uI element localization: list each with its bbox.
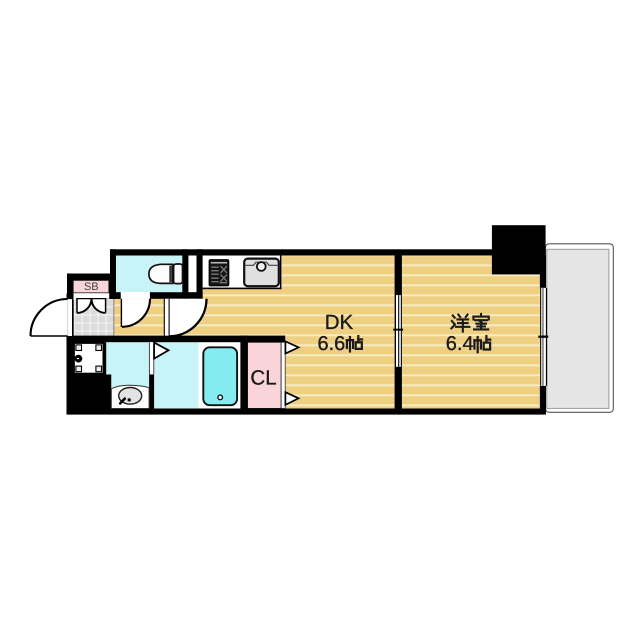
svg-text:CL: CL [250,367,276,390]
svg-text:DK: DK [325,311,354,334]
svg-text:SB: SB [84,281,99,293]
svg-text:6.4: 6.4 [446,333,474,355]
svg-text:6.6: 6.6 [318,333,346,355]
